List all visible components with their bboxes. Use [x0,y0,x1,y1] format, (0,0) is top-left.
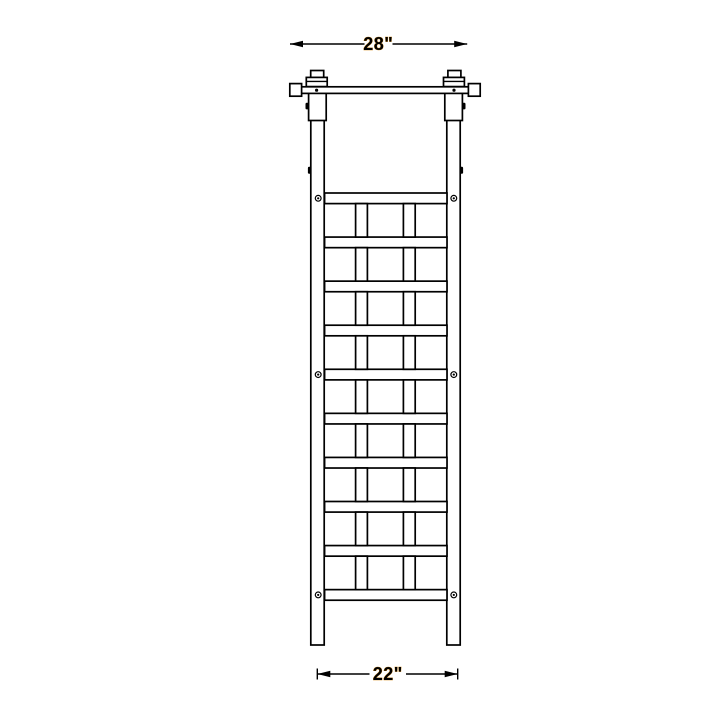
left-post-bump [308,167,312,174]
post-fastener-bumps [306,103,466,174]
top-rail [301,87,471,94]
lattice-rail [325,193,447,204]
lattice-bar [356,556,368,589]
right-post-bump [460,167,464,174]
lattice-bar [403,336,415,369]
lattice-rail [325,369,447,380]
lattice-bar [403,204,415,237]
rail-screw-center-dot [317,594,319,596]
left-post-collar [309,92,327,121]
top-rail-left-end-cap [290,84,302,97]
lattice-bar [356,468,368,501]
right-finial-screw-dot [452,89,455,92]
arrowhead-left [290,41,303,47]
lattice-bar [403,248,415,281]
lattice-bar [403,292,415,325]
rail-screw-center-dot [453,197,455,199]
rail-screw-center-dot [453,594,455,596]
arrowhead-left [317,671,330,677]
drawing-svg: 28" 22" [0,0,720,720]
lattice-bar [403,380,415,413]
left-post [311,93,324,645]
post-collars [309,92,463,121]
lattice-bar [403,556,415,589]
right-post-collar [445,92,463,121]
right-collar-bump [462,103,465,110]
lattice-rail [325,413,447,424]
lattice-bar [356,292,368,325]
left-collar-bump [306,103,309,110]
arrowhead-right [454,41,467,47]
lattice-rail [325,237,447,248]
lattice-bar [403,512,415,545]
trellis-drawing: 28" 22" [0,0,720,720]
lattice-bar [356,204,368,237]
right-post [447,93,460,645]
arrowhead-right [445,671,458,677]
dimension-top: 28" [290,34,467,54]
rail-screw-center-dot [317,197,319,199]
dimension-bottom: 22" [317,664,457,684]
finials [306,71,464,87]
top-rail-right-end-cap [468,84,480,97]
lattice-rail [325,590,447,601]
lattice-bar [356,248,368,281]
lattice-rail [325,546,447,557]
lattice-rail [325,325,447,336]
lattice-bar [403,468,415,501]
rail-screw-center-dot [453,373,455,375]
dimension-bottom-label: 22" [373,664,403,684]
lattice-bar [356,424,368,457]
lattice-bar [403,424,415,457]
lattice-bar [356,380,368,413]
lattice-panel [315,193,456,600]
dimension-top-label: 28" [363,34,393,54]
lattice-bar [356,336,368,369]
lattice-rail [325,457,447,468]
left-finial-screw-dot [315,89,318,92]
rail-screw-center-dot [317,373,319,375]
lattice-rail [325,281,447,292]
lattice-rail [325,501,447,512]
lattice-bar [356,512,368,545]
